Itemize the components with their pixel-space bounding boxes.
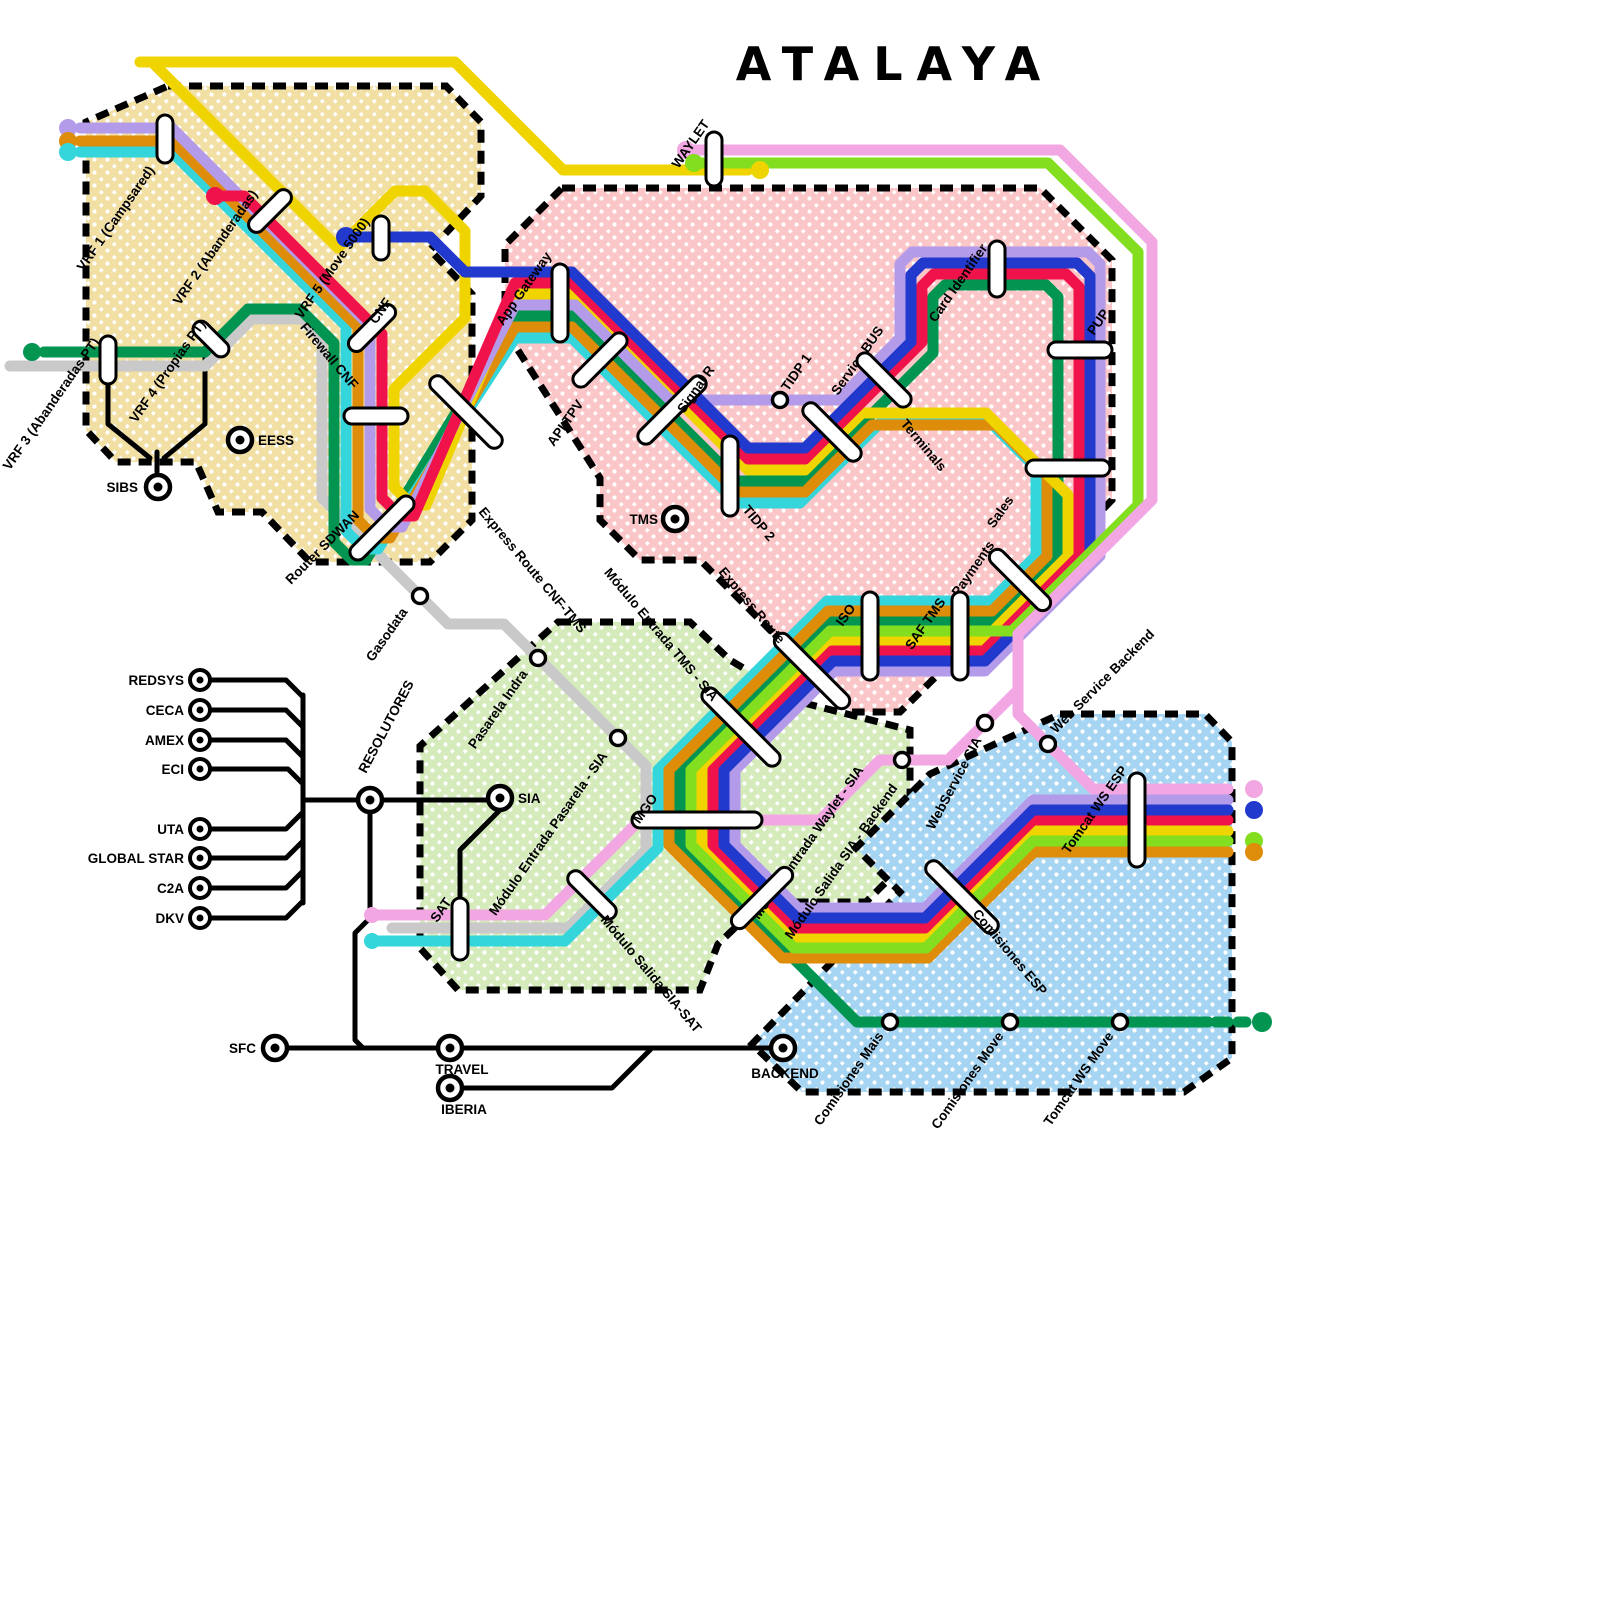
station-marker-pill (722, 436, 738, 516)
metro-map: VRF 1 (Campsared)VRF 2 (Abanderadas)VRF … (0, 0, 1600, 1600)
station-marker-core (496, 794, 505, 803)
black-network-segment (210, 871, 303, 888)
station-label-sfc: SFC (229, 1041, 256, 1056)
station-marker-core (197, 766, 204, 773)
station-marker-stop (978, 716, 993, 731)
black-network-segment (210, 680, 303, 697)
station-label-eci: ECI (161, 762, 184, 777)
terminus-dot-orange (1245, 843, 1263, 861)
black-network-segment (210, 812, 303, 829)
station-marker-core (154, 483, 163, 492)
map-title: ATALAYA (736, 37, 1054, 91)
terminus-dot-cyan (59, 143, 77, 161)
station-redsys: REDSYS (128, 670, 210, 690)
station-marker-core (197, 885, 204, 892)
terminus-dot-yellow (751, 161, 769, 179)
station-iberia: IBERIA (438, 1076, 487, 1117)
station-label-resolutores: RESOLUTORES (355, 678, 416, 776)
terminus-dot-pink (364, 907, 380, 923)
station-travel: TRAVEL (436, 1036, 489, 1077)
station-marker-pill (552, 264, 568, 342)
station-label-backend: BACKEND (751, 1066, 819, 1081)
station-label-iberia: IBERIA (441, 1102, 487, 1117)
station-marker-core (197, 737, 204, 744)
terminus-dot-green (23, 343, 41, 361)
station-marker-pill (373, 216, 389, 260)
station-label-tms: TMS (630, 512, 659, 527)
station-label-ceca: CECA (146, 703, 185, 718)
terminus-dot-pink (1245, 780, 1263, 798)
black-network-segment (210, 740, 303, 757)
station-label-sia: SIA (518, 791, 541, 806)
station-marker-core (197, 855, 204, 862)
station-marker-core (197, 677, 204, 684)
station-marker-core (366, 796, 375, 805)
station-marker-pill (632, 812, 762, 828)
black-network-segment (210, 841, 303, 858)
station-marker-pill (1129, 773, 1145, 867)
terminus-dot-blue (1245, 801, 1263, 819)
station-marker-pill (989, 241, 1005, 297)
black-network-segment (355, 813, 370, 1047)
station-label-gasodata: Gasodata (363, 605, 411, 664)
station-marker-pill (344, 408, 408, 424)
black-network-segment (210, 901, 303, 918)
station-marker-stop (413, 589, 428, 604)
station-gasodata: Gasodata (363, 589, 428, 665)
black-network-segment (210, 710, 303, 727)
station-amex: AMEX (145, 730, 210, 750)
station-marker-pill (100, 336, 116, 384)
station-marker-stop (773, 393, 788, 408)
station-dkv: DKV (155, 908, 210, 928)
black-network-segment (210, 769, 303, 784)
station-marker-core (197, 915, 204, 922)
station-marker-stop (1041, 737, 1056, 752)
station-marker-core (236, 436, 245, 445)
station-global_star: GLOBAL STAR (88, 848, 210, 868)
terminus-dot-red (206, 187, 224, 205)
station-marker-stop (611, 731, 626, 746)
station-label-uta: UTA (157, 822, 184, 837)
station-marker-pill (1048, 342, 1112, 358)
station-marker-core (446, 1044, 455, 1053)
station-marker-core (271, 1044, 280, 1053)
terminus-dot-green (1252, 1012, 1272, 1032)
station-c2a: C2A (157, 878, 210, 898)
station-marker-pill (706, 132, 722, 186)
station-label-dkv: DKV (155, 911, 184, 926)
station-marker-core (197, 707, 204, 714)
station-label-travel: TRAVEL (436, 1062, 489, 1077)
terminus-dot-cyan (364, 933, 380, 949)
station-sibs: SIBS (106, 475, 170, 499)
station-marker-stop (895, 753, 910, 768)
station-marker-pill (1026, 460, 1110, 476)
station-marker-core (446, 1084, 455, 1093)
station-marker-stop (1113, 1015, 1128, 1030)
station-marker-core (779, 1044, 788, 1053)
station-marker-stop (1003, 1015, 1018, 1030)
station-label-global_star: GLOBAL STAR (88, 851, 184, 866)
station-marker-core (671, 515, 680, 524)
station-label-amex: AMEX (145, 733, 184, 748)
station-marker-stop (883, 1015, 898, 1030)
station-resolutores: RESOLUTORES (355, 678, 416, 812)
station-marker-core (197, 826, 204, 833)
station-marker-pill (952, 592, 968, 680)
station-uta: UTA (157, 819, 210, 839)
station-marker-pill (452, 898, 468, 960)
station-label-c2a: C2A (157, 881, 184, 896)
station-marker-pill (862, 592, 878, 680)
station-marker-stop (531, 651, 546, 666)
station-ceca: CECA (146, 700, 210, 720)
station-eci: ECI (161, 759, 210, 779)
station-sfc: SFC (229, 1036, 287, 1060)
station-label-redsys: REDSYS (128, 673, 184, 688)
station-label-eess: EESS (258, 433, 294, 448)
station-label-express_cnf_tms: Express Route CNF-TMS (476, 504, 590, 635)
metro-map-canvas: VRF 1 (Campsared)VRF 2 (Abanderadas)VRF … (0, 0, 1600, 1600)
station-label-sibs: SIBS (106, 480, 138, 495)
station-marker-pill (157, 115, 173, 163)
